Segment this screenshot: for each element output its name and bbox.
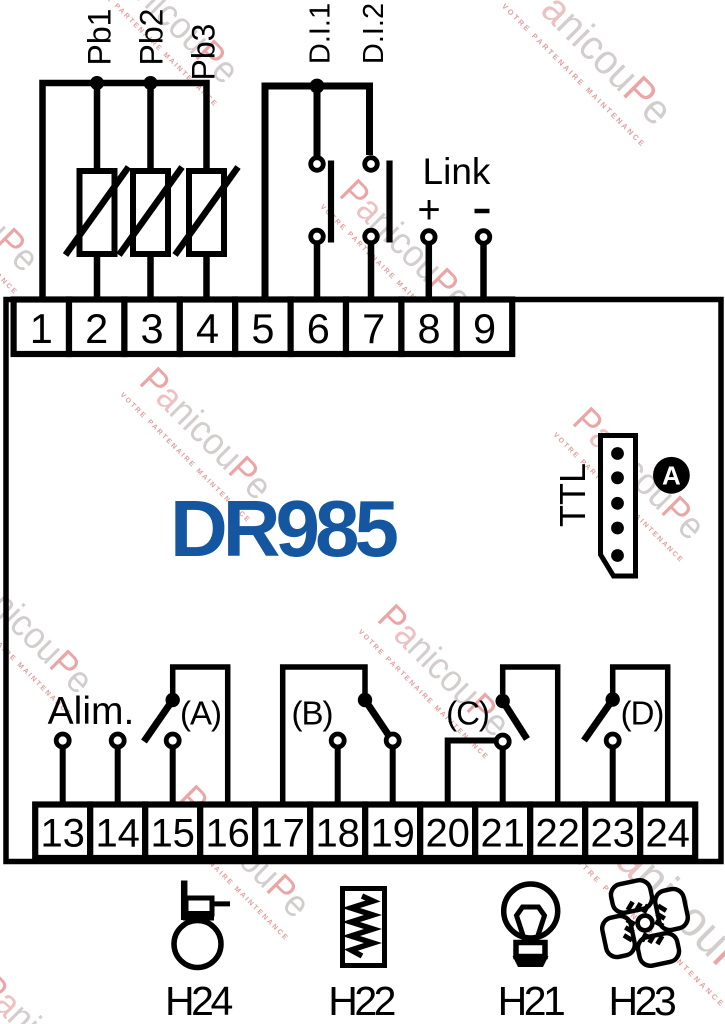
svg-text:+: +: [417, 188, 440, 232]
svg-text:H24: H24: [165, 978, 232, 1024]
svg-text:9: 9: [473, 305, 496, 352]
svg-text:5: 5: [251, 305, 274, 352]
svg-text:3: 3: [141, 305, 164, 352]
svg-text:1: 1: [30, 305, 53, 352]
svg-text:22: 22: [535, 812, 580, 856]
svg-text:13: 13: [40, 812, 85, 856]
svg-text:D.I.2: D.I.2: [358, 3, 390, 64]
svg-text:19: 19: [370, 812, 415, 856]
svg-text:Pb3: Pb3: [186, 24, 222, 81]
svg-text:TTL: TTL: [552, 463, 593, 527]
svg-text:23: 23: [590, 812, 635, 856]
svg-text:18: 18: [315, 812, 360, 856]
svg-text:A: A: [662, 461, 681, 491]
svg-text:D.I.1: D.I.1: [304, 3, 336, 64]
svg-text:H21: H21: [498, 978, 564, 1024]
svg-text:2: 2: [85, 305, 108, 352]
svg-text:16: 16: [205, 812, 250, 856]
svg-text:Alim.: Alim.: [48, 690, 135, 733]
svg-text:15: 15: [150, 812, 195, 856]
svg-text:21: 21: [480, 812, 525, 856]
svg-text:20: 20: [425, 812, 470, 856]
svg-text:Link: Link: [423, 151, 491, 192]
svg-text:17: 17: [260, 812, 305, 856]
svg-text:24: 24: [645, 812, 690, 856]
svg-text:6: 6: [307, 305, 330, 352]
svg-text:4: 4: [196, 305, 219, 352]
svg-text:7: 7: [362, 305, 385, 352]
svg-text:14: 14: [95, 812, 140, 856]
svg-text:(C): (C): [446, 695, 489, 732]
svg-text:H23: H23: [609, 978, 675, 1024]
svg-text:H22: H22: [328, 978, 394, 1024]
svg-text:Pb2: Pb2: [134, 9, 170, 66]
svg-text:DR985: DR985: [170, 484, 398, 573]
svg-text:8: 8: [418, 305, 441, 352]
svg-text:Pb1: Pb1: [82, 9, 118, 66]
svg-text:(A): (A): [180, 695, 221, 732]
svg-text:(B): (B): [292, 695, 333, 732]
svg-text:(D): (D): [621, 695, 664, 732]
